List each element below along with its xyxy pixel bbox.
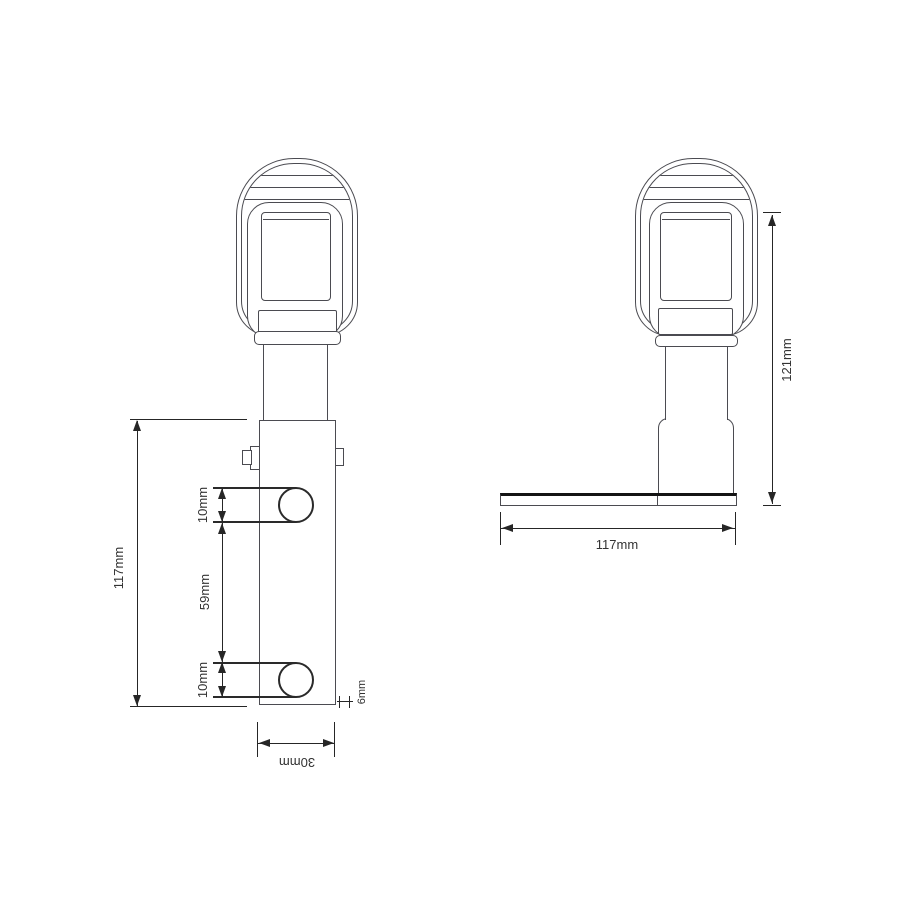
side-collar: [655, 335, 738, 347]
side-base-block: [658, 418, 734, 496]
side-axle-band: [658, 308, 733, 335]
side-base-plate: [500, 493, 737, 506]
dim-side-height-line: [772, 215, 773, 504]
arrow-down-icon: [768, 492, 776, 503]
dim-base-line: [501, 528, 735, 529]
dim-side-height-tick-top: [763, 212, 781, 213]
dim-side-height-label: 121mm: [777, 330, 797, 390]
technical-drawing-page: 117mm 10mm 59mm 10mm 30mm 6mm: [0, 0, 900, 900]
dim-side-height-tick-bottom: [763, 505, 781, 506]
arrow-left-icon: [502, 524, 513, 532]
side-tread-line: [640, 175, 753, 176]
side-window-lip-line: [662, 219, 730, 220]
dim-base-label: 117mm: [587, 537, 647, 553]
side-block-edge-through-plate: [657, 496, 658, 505]
arrow-up-icon: [768, 215, 776, 226]
side-stem: [665, 343, 728, 420]
side-housing-window: [660, 212, 732, 301]
side-view: 117mm 121mm: [0, 0, 900, 900]
arrow-right-icon: [722, 524, 733, 532]
side-tread-line: [640, 187, 753, 188]
side-tread-line: [640, 199, 753, 200]
dim-base-ext-right: [735, 512, 736, 545]
